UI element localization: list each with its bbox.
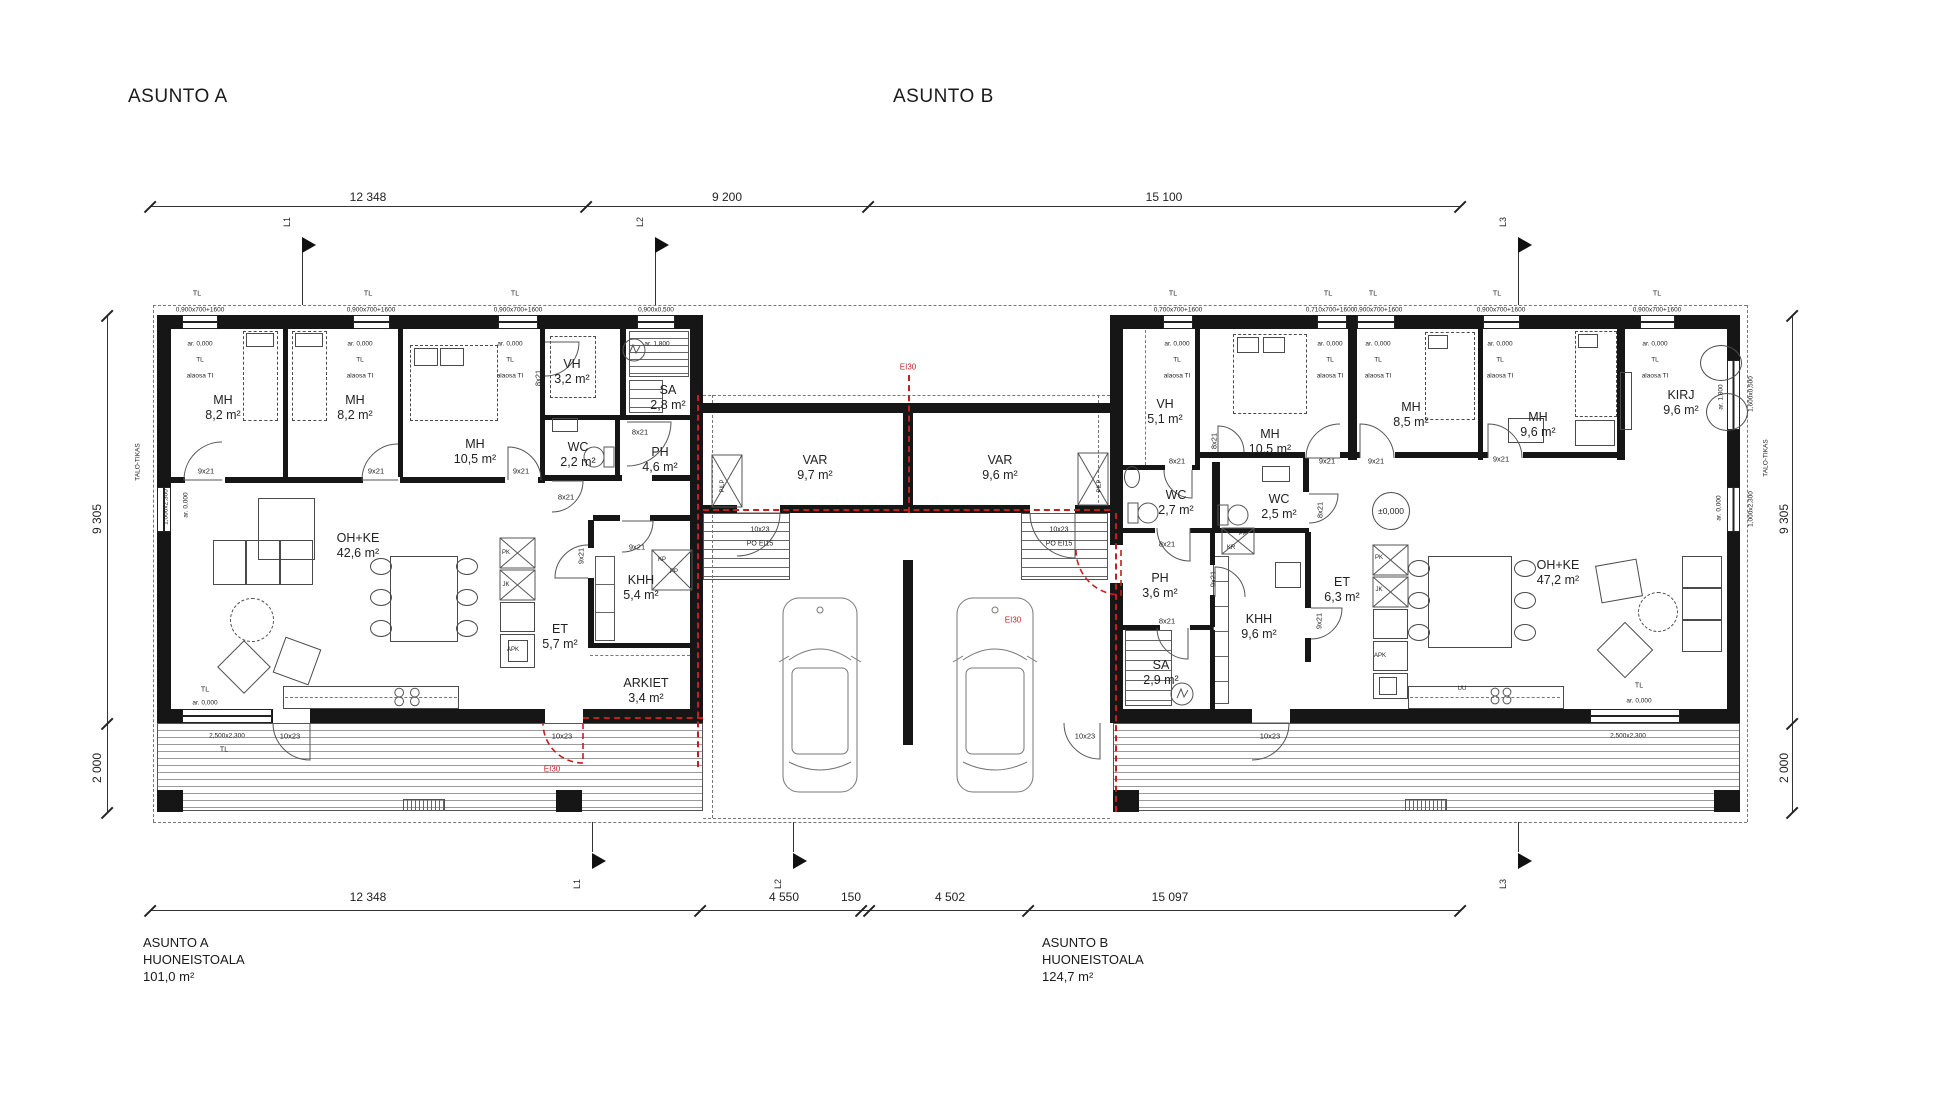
summary-line: ASUNTO B [1042, 934, 1144, 951]
crossed-cabinet [712, 455, 742, 507]
overlay-drawing-svg [0, 0, 1950, 1100]
room-area: 5,4 m² [623, 588, 658, 603]
room-name: KHH [623, 573, 658, 588]
room-label: PH3,6 m² [1142, 571, 1177, 601]
annotation: TL [1326, 357, 1334, 364]
room-name: WC [560, 440, 595, 455]
fire-rating-label: EI30 [544, 765, 560, 774]
annotation: PO EI15 [747, 541, 773, 548]
annotation: 8x21 [558, 493, 574, 502]
room-label: MH10,5 m² [454, 437, 496, 467]
annotation: alaosa TI [1642, 373, 1669, 380]
cooktop-icon [410, 697, 419, 706]
room-label: MH8,2 m² [337, 393, 372, 423]
door-swing [1030, 513, 1075, 558]
summary-line: HUONEISTOALA [1042, 951, 1144, 968]
door-swing [273, 723, 310, 760]
annotation: 0,900x700+1600 [347, 307, 396, 314]
annotation: 0,900x700+1600 [494, 307, 543, 314]
car-icon [789, 762, 851, 770]
dimension-label: 9 305 [1777, 504, 1791, 534]
summary-line: ASUNTO A [143, 934, 245, 951]
annotation: TL [511, 291, 519, 298]
annotation: ar. 0,000 [1626, 698, 1651, 705]
annotation: 9x21 [1315, 613, 1324, 629]
annotation: 1,600x0,500 [1748, 376, 1755, 412]
room-label: MH8,2 m² [205, 393, 240, 423]
apartment-a-area-summary: ASUNTO A HUONEISTOALA 101,0 m² [143, 934, 245, 985]
apartment-a-title: ASUNTO A [128, 86, 228, 108]
annotation: TALO-TIKAS [135, 443, 142, 480]
room-name: ET [1324, 575, 1359, 590]
room-area: 8,5 m² [1393, 415, 1428, 430]
annotation: 0,710x700+1600 [1306, 307, 1355, 314]
annotation: alaosa TI [187, 373, 214, 380]
annotation: ±0,000 [1378, 506, 1404, 516]
room-area: 2,7 m² [1158, 503, 1193, 518]
room-name: MH [1249, 427, 1291, 442]
fire-rating-label: EI30 [900, 363, 916, 372]
annotation: 10x23 [280, 732, 300, 741]
dimension-label: 15 100 [1146, 190, 1183, 204]
annotation: TL [1493, 291, 1501, 298]
annotation: 10x23 [1049, 527, 1068, 534]
annotation: TL [1173, 357, 1181, 364]
room-area: 3,6 m² [1142, 586, 1177, 601]
room-label: WC2,7 m² [1158, 488, 1193, 518]
room-name: WC [1158, 488, 1193, 503]
room-area: 3,4 m² [623, 691, 668, 706]
annotation: ar. 0,000 [1164, 341, 1189, 348]
room-area: 9,6 m² [1241, 627, 1276, 642]
room-name: VAR [982, 453, 1017, 468]
annotation: PILP [1097, 479, 1103, 492]
door-swing [737, 513, 780, 556]
annotation: L3 [1498, 217, 1508, 227]
room-area: 8,2 m² [337, 408, 372, 423]
annotation: L1 [572, 879, 582, 889]
dimension-label: 4 502 [935, 890, 965, 904]
room-label: WC2,5 m² [1261, 492, 1296, 522]
annotation: ar. 0,000 [187, 341, 212, 348]
room-area: 47,2 m² [1537, 573, 1580, 588]
annotation: PP [1239, 531, 1247, 537]
annotation: TL [193, 291, 201, 298]
annotation: 8x21 [632, 428, 648, 437]
annotation: L2 [635, 217, 645, 227]
room-area: 8,2 m² [205, 408, 240, 423]
annotation: alaosa TI [1487, 373, 1514, 380]
annotation: UU [1458, 686, 1467, 692]
summary-line: 101,0 m² [143, 968, 245, 985]
annotation: 8x21 [534, 370, 543, 386]
room-name: PH [642, 445, 677, 460]
car-icon [966, 668, 1024, 754]
room-label: OH+KE47,2 m² [1537, 558, 1580, 588]
room-label: SA2,8 m² [650, 383, 685, 413]
annotation: 0,900x700+1600 [1633, 307, 1682, 314]
annotation: ar. 1,800 [644, 341, 669, 348]
car-icon [963, 649, 1027, 660]
room-area: 2,9 m² [1143, 673, 1178, 688]
room-area: 9,6 m² [982, 468, 1017, 483]
room-area: 9,7 m² [797, 468, 832, 483]
annotation: 0,900x700+1600 [1354, 307, 1403, 314]
sauna-stove-icon [629, 345, 640, 354]
annotation: 9x21 [629, 543, 645, 552]
room-name: SA [1143, 658, 1178, 673]
door-swing [1488, 424, 1522, 458]
room-label: KHH9,6 m² [1241, 612, 1276, 642]
room-label: KHH5,4 m² [623, 573, 658, 603]
room-name: MH [205, 393, 240, 408]
room-name: VH [1147, 397, 1182, 412]
room-name: SA [650, 383, 685, 398]
room-label: PH4,6 m² [642, 445, 677, 475]
annotation: 9x21 [513, 467, 529, 476]
annotation: 8x21 [1169, 457, 1185, 466]
room-area: 10,5 m² [1249, 442, 1291, 457]
cooktop-icon [410, 688, 419, 697]
summary-line: HUONEISTOALA [143, 951, 245, 968]
room-name: VH [554, 357, 589, 372]
annotation: 2,500x2,300 [1610, 733, 1646, 740]
floor-plan-canvas: ASUNTO A ASUNTO B ASUNTO A HUONEISTOALA … [0, 0, 1950, 1100]
cooktop-icon [395, 697, 404, 706]
annotation: TL [1369, 291, 1377, 298]
toilet-icon [1228, 505, 1248, 525]
door-swing [1218, 426, 1244, 452]
dimension-label: 2 000 [90, 753, 104, 783]
car-icon [953, 656, 1037, 662]
annotation: KP [658, 557, 666, 563]
dimension-label: 2 000 [1777, 753, 1791, 783]
door-swing [1064, 723, 1100, 759]
room-label: ARKIET3,4 m² [623, 676, 668, 706]
annotation: TL [506, 357, 514, 364]
annotation: 8x21 [1210, 433, 1219, 449]
car-icon [957, 598, 1033, 792]
room-area: 6,3 m² [1324, 590, 1359, 605]
room-area: 4,6 m² [642, 460, 677, 475]
annotation: TL [201, 687, 209, 694]
room-label: WC2,2 m² [560, 440, 595, 470]
crossed-cabinet [1078, 453, 1108, 505]
annotation: alaosa TI [1164, 373, 1191, 380]
annotation: 10x23 [1075, 732, 1095, 741]
annotation: PK [1375, 555, 1383, 561]
annotation: PP [670, 569, 678, 575]
annotation: ar. 0,000 [1487, 341, 1512, 348]
annotation: APK [507, 647, 519, 653]
annotation: 8x21 [1316, 502, 1325, 518]
room-label: VAR9,7 m² [797, 453, 832, 483]
room-area: 3,2 m² [554, 372, 589, 387]
room-label: KIRJ9,6 m² [1663, 388, 1698, 418]
room-label: VH3,2 m² [554, 357, 589, 387]
room-name: OH+KE [1537, 558, 1580, 573]
annotation: 8x21 [1159, 540, 1175, 549]
dimension-label: 150 [841, 890, 861, 904]
annotation: L2 [773, 879, 783, 889]
annotation: TL [1651, 357, 1659, 364]
room-name: KIRJ [1663, 388, 1698, 403]
annotation: PK [502, 550, 510, 556]
door-swing [1252, 723, 1289, 760]
annotation: TL [356, 357, 364, 364]
annotation: ar. 0,000 [497, 341, 522, 348]
fire-door-swing [1076, 550, 1121, 595]
annotation: 0,900x700+1600 [1477, 307, 1526, 314]
room-area: 9,6 m² [1663, 403, 1698, 418]
car-icon [792, 668, 848, 754]
car-icon [963, 762, 1027, 770]
annotation: 0,700x700+1600 [1154, 307, 1203, 314]
annotation: JK [502, 582, 509, 588]
room-area: 10,5 m² [454, 452, 496, 467]
toilet-icon [1138, 503, 1158, 523]
annotation: 1,000x2,300 [1748, 491, 1755, 527]
room-label: SA2,9 m² [1143, 658, 1178, 688]
dimension-label: 15 097 [1152, 890, 1189, 904]
door-swing [1360, 424, 1394, 458]
toilet-icon [1218, 505, 1228, 525]
annotation: 9x21 [1209, 571, 1218, 587]
annotation: 10x23 [552, 732, 572, 741]
room-label: MH9,6 m² [1520, 410, 1555, 440]
room-name: ET [542, 622, 577, 637]
room-label: ET5,7 m² [542, 622, 577, 652]
room-label: OH+KE42,6 m² [337, 531, 380, 561]
annotation: TL [1653, 291, 1661, 298]
annotation: ar. 0,000 [1716, 495, 1723, 520]
cooktop-icon [1491, 696, 1499, 704]
annotation: JK [1375, 587, 1382, 593]
room-area: 2,5 m² [1261, 507, 1296, 522]
annotation: TL [196, 357, 204, 364]
annotation: TALO-TIKAS [1763, 439, 1770, 476]
annotation: TL [220, 747, 228, 754]
annotation: PO EI15 [1046, 541, 1072, 548]
car-icon [783, 598, 857, 792]
apartment-b-title: ASUNTO B [893, 86, 994, 108]
annotation: 0,900x700+1600 [176, 307, 225, 314]
room-label: VAR9,6 m² [982, 453, 1017, 483]
annotation: 9x21 [1368, 457, 1384, 466]
car-icon [789, 649, 851, 660]
annotation: ar. 0,000 [192, 700, 217, 707]
cooktop-icon [1503, 688, 1511, 696]
annotation: TL [1169, 291, 1177, 298]
annotation: alaosa TI [497, 373, 524, 380]
annotation: 10x23 [1260, 732, 1280, 741]
dimension-label: 9 200 [712, 190, 742, 204]
annotation: KR [1227, 545, 1235, 551]
room-area: 5,1 m² [1147, 412, 1182, 427]
room-name: MH [1520, 410, 1555, 425]
annotation: 0,900x0,500 [638, 307, 674, 314]
annotation: 9x21 [577, 548, 586, 564]
annotation: alaosa TI [1317, 373, 1344, 380]
annotation: L1 [282, 217, 292, 227]
cooktop-icon [1503, 696, 1511, 704]
dimension-label: 12 348 [350, 190, 387, 204]
fire-door-swing [543, 723, 583, 763]
door-swing [1215, 567, 1245, 597]
car-icon [992, 607, 998, 613]
room-area: 2,2 m² [560, 455, 595, 470]
room-area: 5,7 m² [542, 637, 577, 652]
annotation: 2,500x2,300 [209, 733, 245, 740]
cooktop-icon [395, 688, 404, 697]
room-label: VH5,1 m² [1147, 397, 1182, 427]
annotation: TL [1374, 357, 1382, 364]
room-area: 9,6 m² [1520, 425, 1555, 440]
car-icon [817, 607, 823, 613]
room-name: VAR [797, 453, 832, 468]
annotation: 9x21 [1319, 457, 1335, 466]
fire-rating-label: EI30 [1005, 616, 1021, 625]
cooktop-icon [1491, 688, 1499, 696]
annotation: L3 [1498, 879, 1508, 889]
annotation: 9x21 [198, 467, 214, 476]
room-name: ARKIET [623, 676, 668, 691]
door-swing [1157, 628, 1188, 659]
annotation: APK [1374, 653, 1386, 659]
annotation: 10x23 [750, 527, 769, 534]
summary-line: 124,7 m² [1042, 968, 1144, 985]
room-name: OH+KE [337, 531, 380, 546]
toilet-icon [604, 447, 614, 467]
room-name: KHH [1241, 612, 1276, 627]
annotation: TL [1635, 683, 1643, 690]
annotation: TL [364, 291, 372, 298]
sauna-stove-icon [1177, 689, 1188, 698]
annotation: 9x21 [368, 467, 384, 476]
room-name: WC [1261, 492, 1296, 507]
room-name: MH [454, 437, 496, 452]
apartment-b-area-summary: ASUNTO B HUONEISTOALA 124,7 m² [1042, 934, 1144, 985]
toilet-icon [1128, 503, 1138, 523]
annotation: ar. 0,000 [1642, 341, 1667, 348]
annotation: 1,000x2,300 [163, 489, 170, 525]
annotation: TL [1324, 291, 1332, 298]
annotation: 9x21 [1493, 455, 1509, 464]
annotation: ar. 0,000 [183, 492, 190, 517]
room-label: MH8,5 m² [1393, 400, 1428, 430]
annotation: ar. 0,000 [1317, 341, 1342, 348]
room-name: PH [1142, 571, 1177, 586]
annotation: 8x21 [1159, 617, 1175, 626]
dimension-label: 9 305 [90, 504, 104, 534]
dimension-label: 4 550 [769, 890, 799, 904]
annotation: ar. 0,000 [347, 341, 372, 348]
annotation: alaosa TI [1365, 373, 1392, 380]
dimension-label: 12 348 [350, 890, 387, 904]
room-name: MH [1393, 400, 1428, 415]
room-label: ET6,3 m² [1324, 575, 1359, 605]
annotation: ar. 1,800 [1718, 384, 1725, 409]
annotation: TL [1496, 357, 1504, 364]
annotation: alaosa TI [347, 373, 374, 380]
room-label: MH10,5 m² [1249, 427, 1291, 457]
room-area: 42,6 m² [337, 546, 380, 561]
annotation: PILP [720, 479, 726, 492]
room-name: MH [337, 393, 372, 408]
annotation: ar. 0,000 [1365, 341, 1390, 348]
sauna-stove-icon [623, 339, 645, 361]
room-area: 2,8 m² [650, 398, 685, 413]
door-swing [1306, 424, 1340, 458]
